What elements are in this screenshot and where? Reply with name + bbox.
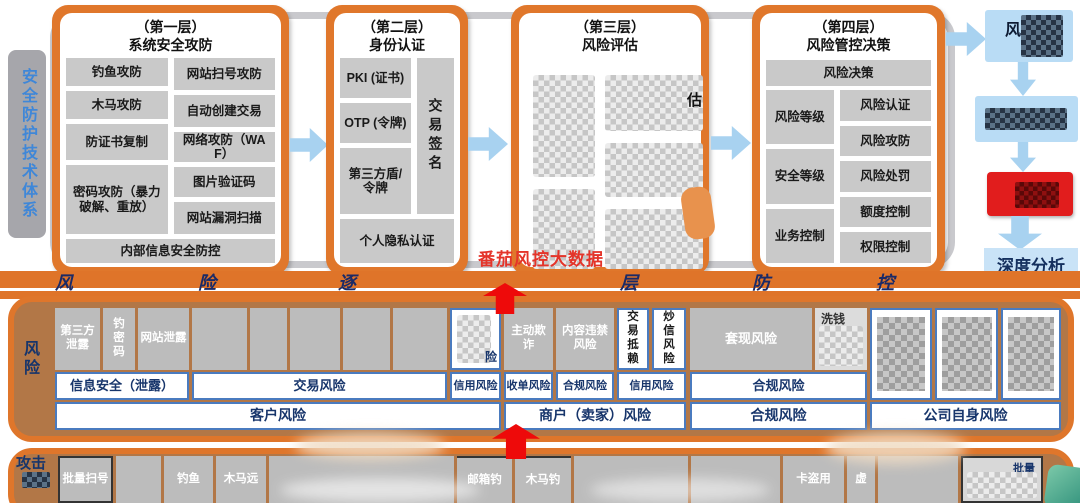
layer2-title-line2: 身份认证 <box>340 37 454 55</box>
censored-box <box>290 308 340 370</box>
band-strip-top <box>0 271 1080 288</box>
layer1-item: 网站漏洞扫描 <box>174 202 276 234</box>
layer2-item: OTP (令牌) <box>340 103 411 143</box>
risk-item: 套现风险 <box>690 308 812 370</box>
layer2-bottom-item: 个人隐私认证 <box>340 219 454 263</box>
layer4-box: （第四层） 风险管控决策 风险决策 风险等级 安全等级 业务控制 风险认证 风险… <box>752 5 945 275</box>
layer2-title: （第二层） 身份认证 <box>340 19 454 54</box>
risk-item: 第三方泄露 <box>55 308 100 370</box>
layer1-item: 图片验证码 <box>174 167 276 197</box>
band-char: 风 <box>55 269 73 295</box>
diagram-root: 安全防护技术体系 （第一层） 系统安全攻防 钓鱼攻防 木马攻防 防证书复制 密码… <box>0 0 1080 503</box>
flow-box-risk-char: 风 <box>1005 16 1021 40</box>
layer4-item: 业务控制 <box>766 209 834 263</box>
layer1-item: 网络攻防（WAF） <box>174 132 276 162</box>
risk-group-cell: 客户风险 <box>55 402 501 430</box>
censored-box <box>967 472 1037 498</box>
risk-item-label: 洗钱 <box>821 310 845 327</box>
band-char: 逐 <box>338 269 356 295</box>
flow-box-2 <box>975 96 1078 142</box>
layer4-item: 额度控制 <box>840 197 931 228</box>
layer2-side-label: 交易签名 <box>427 98 443 174</box>
layer2-side-item: 交易签名 <box>417 58 454 214</box>
layer1-item: 网站扫号攻防 <box>174 58 276 90</box>
layer4-title-line1: （第四层） <box>766 19 931 37</box>
teal-corner-shape <box>1043 463 1080 503</box>
flow-arrow-down-icon <box>1010 142 1036 172</box>
censored-cell <box>870 308 932 400</box>
risk-item: 网站泄露 <box>138 308 189 370</box>
risk-item: 内容违禁风险 <box>556 308 614 370</box>
censored-box <box>985 108 1067 130</box>
band-char: 控 <box>876 269 894 295</box>
layer1-item: 密码攻防（暴力破解、重放） <box>66 165 168 234</box>
censored-cell <box>935 308 998 400</box>
layer4-item: 风险攻防 <box>840 126 931 157</box>
censored-icon <box>22 472 50 488</box>
censored-box <box>1021 15 1063 57</box>
layer3-partial-char: 估 <box>687 89 702 110</box>
layer2-title-line1: （第二层） <box>340 19 454 37</box>
risk-category-cell: 交易风险 <box>192 372 447 400</box>
watermark-text: 番茄风控大数据 <box>478 245 604 270</box>
risk-category-cell: 信用风险 <box>617 372 686 400</box>
risk-partial-char: 险 <box>485 351 497 364</box>
risk-category-cell: 收单风险 <box>504 372 553 400</box>
censored-box <box>250 308 287 370</box>
risk-item: 主动欺诈 <box>504 308 553 370</box>
band-char: 防 <box>752 269 770 295</box>
attack-item: 木马远 <box>216 456 266 503</box>
flow-arrow-down-big-icon <box>998 216 1042 250</box>
censored-box <box>819 326 863 366</box>
sidebar-bar: 安全防护技术体系 <box>8 50 46 238</box>
blur-overlay <box>295 432 445 460</box>
risk-item: 炒信风险 <box>652 308 686 370</box>
band-char: 层 <box>620 269 638 295</box>
flow-box-red <box>987 172 1073 216</box>
risk-category-cell: 合规风险 <box>556 372 614 400</box>
attack-item: 虚 <box>847 456 875 503</box>
attack-item: 卡盗用 <box>783 456 844 503</box>
layer1-title-line2: 系统安全攻防 <box>66 37 275 55</box>
risk-category-cell: 信息安全（泄露） <box>55 372 189 400</box>
layer2-item: PKI (证书) <box>340 58 411 98</box>
risk-group-cell: 合规风险 <box>690 402 867 430</box>
layer3-title-line1: （第三层） <box>525 19 695 37</box>
risk-item: 钓密码 <box>103 308 135 370</box>
layer1-item: 木马攻防 <box>66 91 168 119</box>
layer1-box: （第一层） 系统安全攻防 钓鱼攻防 木马攻防 防证书复制 密码攻防（暴力破解、重… <box>52 5 289 275</box>
layer1-item: 钓鱼攻防 <box>66 58 168 86</box>
sidebar-label: 安全防护技术体系 <box>15 68 39 220</box>
censored-box <box>533 75 595 177</box>
risk-section-label: 风险 <box>24 340 42 378</box>
risk-category-cell: 合规风险 <box>690 372 867 400</box>
layer2-box: （第二层） 身份认证 PKI (证书) OTP (令牌) 第三方盾/令牌 交易签… <box>326 5 468 275</box>
layer4-title-line2: 风险管控决策 <box>766 37 931 55</box>
blur-overlay <box>280 478 480 502</box>
layer3-box: （第三层） 风险评估 估 <box>511 5 709 275</box>
layer4-item: 风险等级 <box>766 90 834 144</box>
risk-group-cell: 公司自身风险 <box>870 402 1061 430</box>
layer1-title: （第一层） 系统安全攻防 <box>66 19 275 54</box>
censored-cell <box>1001 308 1061 400</box>
censored-box <box>393 308 447 370</box>
attack-item-partially-censored: 批量 <box>961 456 1043 503</box>
attack-item: 批量扫号 <box>58 456 113 503</box>
attack-item: 木马钓 <box>515 456 571 503</box>
layer1-item: 自动创建交易 <box>174 95 276 127</box>
layer1-title-line1: （第一层） <box>66 19 275 37</box>
layer3-title-line2: 风险评估 <box>525 37 695 55</box>
flow-box-risk: 风 <box>985 10 1073 62</box>
attack-item: 钓鱼 <box>164 456 213 503</box>
risk-item-censored-cell: 险 <box>450 308 501 370</box>
layer4-title: （第四层） 风险管控决策 <box>766 19 931 54</box>
layer4-item: 风险处罚 <box>840 161 931 192</box>
blur-overlay <box>590 478 770 502</box>
risk-item: 交易抵赖 <box>617 308 649 370</box>
blur-overlay <box>826 432 966 464</box>
layer4-item: 权限控制 <box>840 232 931 263</box>
layer1-bottom-item: 内部信息安全防控 <box>66 239 275 263</box>
risk-group-cell: 商户（卖家）风险 <box>504 402 686 430</box>
censored-box <box>192 308 247 370</box>
layer2-item: 第三方盾/令牌 <box>340 148 411 214</box>
censored-box <box>1015 182 1059 208</box>
flow-arrow-down-icon <box>1010 62 1036 96</box>
attack-section-label: 攻击 <box>16 452 46 473</box>
censored-box <box>116 456 161 503</box>
layer3-title: （第三层） 风险评估 <box>525 19 695 54</box>
layer4-item: 风险认证 <box>840 90 931 121</box>
layer4-top-item: 风险决策 <box>766 60 931 86</box>
layer1-item: 防证书复制 <box>66 124 168 160</box>
band-char: 险 <box>198 269 216 295</box>
risk-item-partially-censored: 洗钱 <box>815 308 867 370</box>
censored-box <box>343 308 390 370</box>
layer4-item: 安全等级 <box>766 149 834 203</box>
risk-category-cell: 信用风险 <box>450 372 501 400</box>
